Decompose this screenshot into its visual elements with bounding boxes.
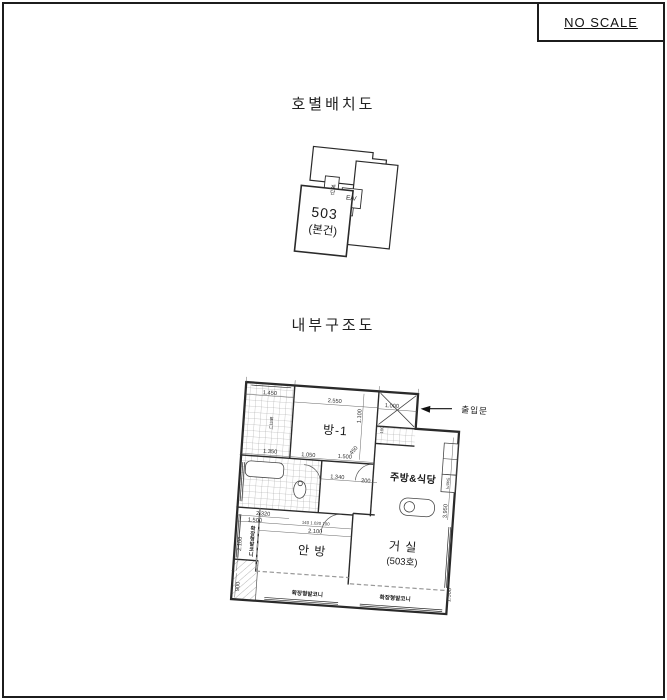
dim-200: 200	[361, 478, 371, 485]
dim-1100: 1.100	[356, 409, 363, 424]
dim-900: 900	[235, 582, 242, 592]
elevator-label: E/V	[346, 195, 357, 203]
dim-2320: 2.320	[256, 511, 271, 518]
no-scale-label: NO SCALE	[564, 15, 638, 30]
toilet-tank	[298, 481, 303, 486]
floor-plan: 방-1 주방&식당 안 방 거 실 (503호) 출입문 확장형발코니 확장형발…	[229, 375, 505, 621]
dim-3950: 3.950	[442, 504, 449, 519]
unit-layout-title: 호별배치도	[0, 93, 667, 114]
unit-number-label: 503	[311, 204, 339, 223]
bathtub	[245, 461, 284, 479]
dim-2100-a: 2.100	[308, 528, 323, 535]
unit-locator-diagram: 계단 E/V 503 (본건)	[288, 141, 412, 270]
stairs-label: 계단	[328, 184, 335, 196]
dim-2100-left: 2.100	[237, 537, 244, 552]
utility-label: 발코니	[268, 416, 273, 429]
internal-structure-title: 내부구조도	[0, 314, 667, 335]
living-room-unit-label: (503호)	[386, 553, 418, 569]
dim-1450: 1.450	[263, 390, 278, 397]
master-room-label: 안 방	[297, 541, 327, 560]
fridge-label: 냉장고	[445, 477, 450, 489]
entrance-arrow-icon	[420, 405, 452, 414]
dim-1350: 1.350	[263, 448, 278, 455]
dim-2550: 2.550	[327, 398, 342, 405]
dim-1500-a: 1.500	[338, 453, 353, 460]
dim-100: 100	[380, 426, 386, 434]
kitchen-sink	[404, 501, 415, 512]
dim-1500-b: 1.500	[248, 517, 263, 524]
dim-1500-right: 1.500	[446, 588, 453, 603]
entrance-label: 출입문	[461, 402, 488, 417]
dim-1050: 1.050	[301, 452, 316, 459]
dim-1340: 1.340	[330, 474, 345, 481]
dim-1000: 1.000	[385, 403, 400, 410]
shaft-hatch	[231, 559, 258, 601]
unit-note-label: (본건)	[308, 220, 338, 239]
building-footprint-drawing	[288, 141, 412, 270]
building-outline	[294, 146, 399, 261]
room1-label: 방-1	[322, 421, 348, 440]
no-scale-box: NO SCALE	[537, 2, 665, 42]
